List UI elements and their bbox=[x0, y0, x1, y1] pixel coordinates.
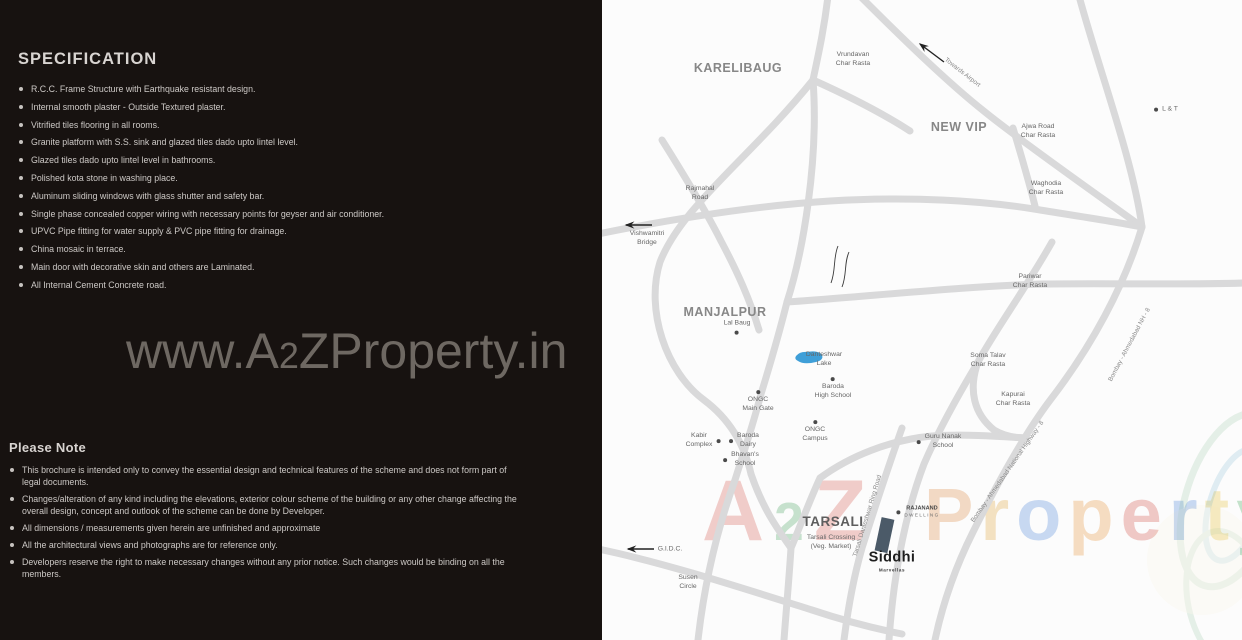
map-label-text: Lal Baug bbox=[724, 320, 751, 329]
poi-dot bbox=[756, 390, 760, 394]
map-label-text: Char Rasta bbox=[836, 60, 870, 69]
specification-title: SPECIFICATION bbox=[18, 50, 384, 69]
label-ongc-main-gate: ONGCMain Gate bbox=[742, 396, 773, 414]
label-baroda-high-school: BarodaHigh School bbox=[815, 383, 852, 401]
map-label-text: Dairy bbox=[737, 441, 759, 450]
label-baroda-dairy: BarodaDairy bbox=[737, 432, 759, 450]
map-label-text: KARELIBAUG bbox=[694, 60, 782, 76]
map-label-text: Soma Talav bbox=[970, 352, 1005, 361]
map-label-text: Char Rasta bbox=[970, 361, 1005, 370]
specification-item: All Internal Cement Concrete road. bbox=[18, 279, 384, 291]
map-label-text: Towards Airport bbox=[942, 56, 981, 89]
map-label-text: G.I.D.C. bbox=[658, 546, 683, 555]
specification-item: Single phase concealed copper wiring wit… bbox=[18, 208, 384, 220]
specification-item: Glazed tiles dado upto lintel level in b… bbox=[18, 154, 384, 166]
please-note-item: Changes/alteration of any kind including… bbox=[9, 493, 521, 517]
map-label-text: Danteshwar bbox=[806, 351, 842, 360]
map-label-text: Lake bbox=[806, 360, 842, 369]
map-label-text: Char Rasta bbox=[996, 400, 1030, 409]
watermark-prefix: www.A bbox=[126, 323, 279, 379]
map-label-text: Kapurai bbox=[996, 391, 1030, 400]
specification-item: Granite platform with S.S. sink and glaz… bbox=[18, 136, 384, 148]
specification-item: Internal smooth plaster - Outside Textur… bbox=[18, 101, 384, 113]
map-label-text: RAJANAND bbox=[904, 505, 939, 512]
map-label-text: Campus bbox=[802, 435, 827, 444]
brochure-page: SPECIFICATION R.C.C. Frame Structure wit… bbox=[0, 0, 1242, 640]
label-towards-airport: Towards Airport bbox=[942, 56, 981, 89]
label-l-and-t: L & T bbox=[1162, 106, 1178, 115]
map-label-text: Complex bbox=[686, 441, 713, 450]
map-label-text: Siddhi bbox=[869, 549, 916, 568]
specification-item: UPVC Pipe fitting for water supply & PVC… bbox=[18, 225, 384, 237]
label-kabir-complex: KabirComplex bbox=[686, 432, 713, 450]
map-label-text: Vishwamitri bbox=[630, 230, 665, 239]
map-label-text: TARSALI bbox=[803, 513, 864, 531]
location-map: A2Z Property bbox=[602, 0, 1242, 640]
map-label-text: Circle bbox=[678, 583, 697, 592]
siddhi-logo: SiddhiMarvellas bbox=[869, 549, 916, 574]
specification-list: R.C.C. Frame Structure with Earthquake r… bbox=[18, 83, 384, 291]
specification-panel: SPECIFICATION R.C.C. Frame Structure wit… bbox=[0, 0, 602, 640]
map-label-text: Char Rasta bbox=[1029, 189, 1063, 198]
poi-dot bbox=[729, 439, 733, 443]
map-label-text: ONGC bbox=[802, 426, 827, 435]
map-label-text: Bhavan's bbox=[731, 451, 759, 460]
please-note-section: Please Note This brochure is intended on… bbox=[9, 440, 521, 585]
please-note-title: Please Note bbox=[9, 440, 521, 455]
map-label-text: L & T bbox=[1162, 106, 1178, 115]
map-labels: KARELIBAUGNEW VIPMANJALPURTARSALIVrundav… bbox=[602, 0, 1242, 640]
map-label-text: MANJALPUR bbox=[684, 304, 767, 320]
poi-dot bbox=[831, 377, 835, 381]
map-label-text: NEW VIP bbox=[931, 119, 987, 135]
label-waghodia-char-rasta: WaghodiaChar Rasta bbox=[1029, 180, 1063, 198]
specification-item: Polished kota stone in washing place. bbox=[18, 172, 384, 184]
label-vrundavan-char-rasta: VrundavanChar Rasta bbox=[836, 51, 870, 69]
label-tarsali-crossing: Tarsali Crossing(Veg. Market) bbox=[807, 534, 855, 552]
please-note-item: Developers reserve the right to make nec… bbox=[9, 556, 521, 580]
map-label-text: Rajmahal bbox=[686, 185, 715, 194]
please-note-item: All the architectural views and photogra… bbox=[9, 539, 521, 551]
label-gidc: G.I.D.C. bbox=[658, 546, 683, 555]
specification-item: Main door with decorative skin and other… bbox=[18, 261, 384, 273]
map-label-text: Char Rasta bbox=[1021, 132, 1055, 141]
poi-dot bbox=[723, 458, 727, 462]
poi-dot bbox=[735, 330, 739, 334]
map-label-text: Waghodia bbox=[1029, 180, 1063, 189]
specification-item: Vitrified tiles flooring in all rooms. bbox=[18, 119, 384, 131]
label-vishwamitri-bridge: VishwamitriBridge bbox=[630, 230, 665, 248]
map-label-text: Vrundavan bbox=[836, 51, 870, 60]
map-label-text: Baroda bbox=[815, 383, 852, 392]
specification-section: SPECIFICATION R.C.C. Frame Structure wit… bbox=[18, 50, 384, 297]
label-guru-nanak-school: Guru NanakSchool bbox=[925, 433, 962, 451]
a2zproperty-watermark: www.A2ZProperty.in bbox=[126, 322, 567, 380]
label-bombay-ahmedabad-national-highway-8: Bombay - Ahmedabad National Highway - 8 bbox=[970, 420, 1047, 525]
area-karelibaug: KARELIBAUG bbox=[694, 60, 782, 76]
map-label-text: Ajwa Road bbox=[1021, 123, 1055, 132]
label-lal-baug: Lal Baug bbox=[724, 320, 751, 329]
map-label-text: School bbox=[731, 460, 759, 469]
please-note-list: This brochure is intended only to convey… bbox=[9, 464, 521, 580]
area-tarsali: TARSALI bbox=[803, 513, 864, 531]
map-label-text: Guru Nanak bbox=[925, 433, 962, 442]
poi-dot bbox=[1154, 108, 1158, 112]
map-label-text: (Veg. Market) bbox=[807, 543, 855, 552]
label-ongc-campus: ONGCCampus bbox=[802, 426, 827, 444]
label-susen-circle: SusenCircle bbox=[678, 574, 697, 592]
label-soma-talav-char-rasta: Soma TalavChar Rasta bbox=[970, 352, 1005, 370]
map-label-text: Bombay - Ahmedabad NH - 8 bbox=[1107, 307, 1153, 383]
label-pariwar-char-rasta: PariwarChar Rasta bbox=[1013, 273, 1047, 291]
poi-dot bbox=[716, 439, 720, 443]
map-label-text: Char Rasta bbox=[1013, 282, 1047, 291]
label-rajanand-dwelling: RAJANANDDWELLING bbox=[904, 505, 939, 518]
label-bhavans-school: Bhavan'sSchool bbox=[731, 451, 759, 469]
map-label-text: School bbox=[925, 442, 962, 451]
watermark-two: 2 bbox=[279, 335, 299, 376]
area-new-vip: NEW VIP bbox=[931, 119, 987, 135]
watermark-suffix: ZProperty.in bbox=[299, 323, 568, 379]
map-label-text: Main Gate bbox=[742, 405, 773, 414]
label-rajmahal-road: RajmahalRoad bbox=[686, 185, 715, 203]
poi-dot bbox=[896, 510, 900, 514]
map-label-text: High School bbox=[815, 392, 852, 401]
map-label-text: Bridge bbox=[630, 239, 665, 248]
map-label-text: Tarsali Crossing bbox=[807, 534, 855, 543]
specification-item: China mosaic in terrace. bbox=[18, 243, 384, 255]
map-label-text: Bombay - Ahmedabad National Highway - 8 bbox=[970, 420, 1047, 525]
specification-item: R.C.C. Frame Structure with Earthquake r… bbox=[18, 83, 384, 95]
label-danteshwar-lake: DanteshwarLake bbox=[806, 351, 842, 369]
map-label-text: Susen bbox=[678, 574, 697, 583]
please-note-item: All dimensions / measurements given here… bbox=[9, 522, 521, 534]
label-kapurai-char-rasta: KapuraiChar Rasta bbox=[996, 391, 1030, 409]
map-label-text: Road bbox=[686, 194, 715, 203]
map-label-text: Baroda bbox=[737, 432, 759, 441]
label-bombay-ahmedabad-nh8: Bombay - Ahmedabad NH - 8 bbox=[1107, 307, 1153, 383]
poi-dot bbox=[813, 420, 817, 424]
map-label-text: ONGC bbox=[742, 396, 773, 405]
area-manjalpur: MANJALPUR bbox=[684, 304, 767, 320]
please-note-item: This brochure is intended only to convey… bbox=[9, 464, 521, 488]
map-label-text: Pariwar bbox=[1013, 273, 1047, 282]
specification-item: Aluminum sliding windows with glass shut… bbox=[18, 190, 384, 202]
map-label-text: Kabir bbox=[686, 432, 713, 441]
label-ajwa-road-char-rasta: Ajwa RoadChar Rasta bbox=[1021, 123, 1055, 141]
poi-dot bbox=[917, 440, 921, 444]
map-label-text: Marvellas bbox=[869, 567, 916, 573]
map-label-text: DWELLING bbox=[904, 513, 939, 519]
